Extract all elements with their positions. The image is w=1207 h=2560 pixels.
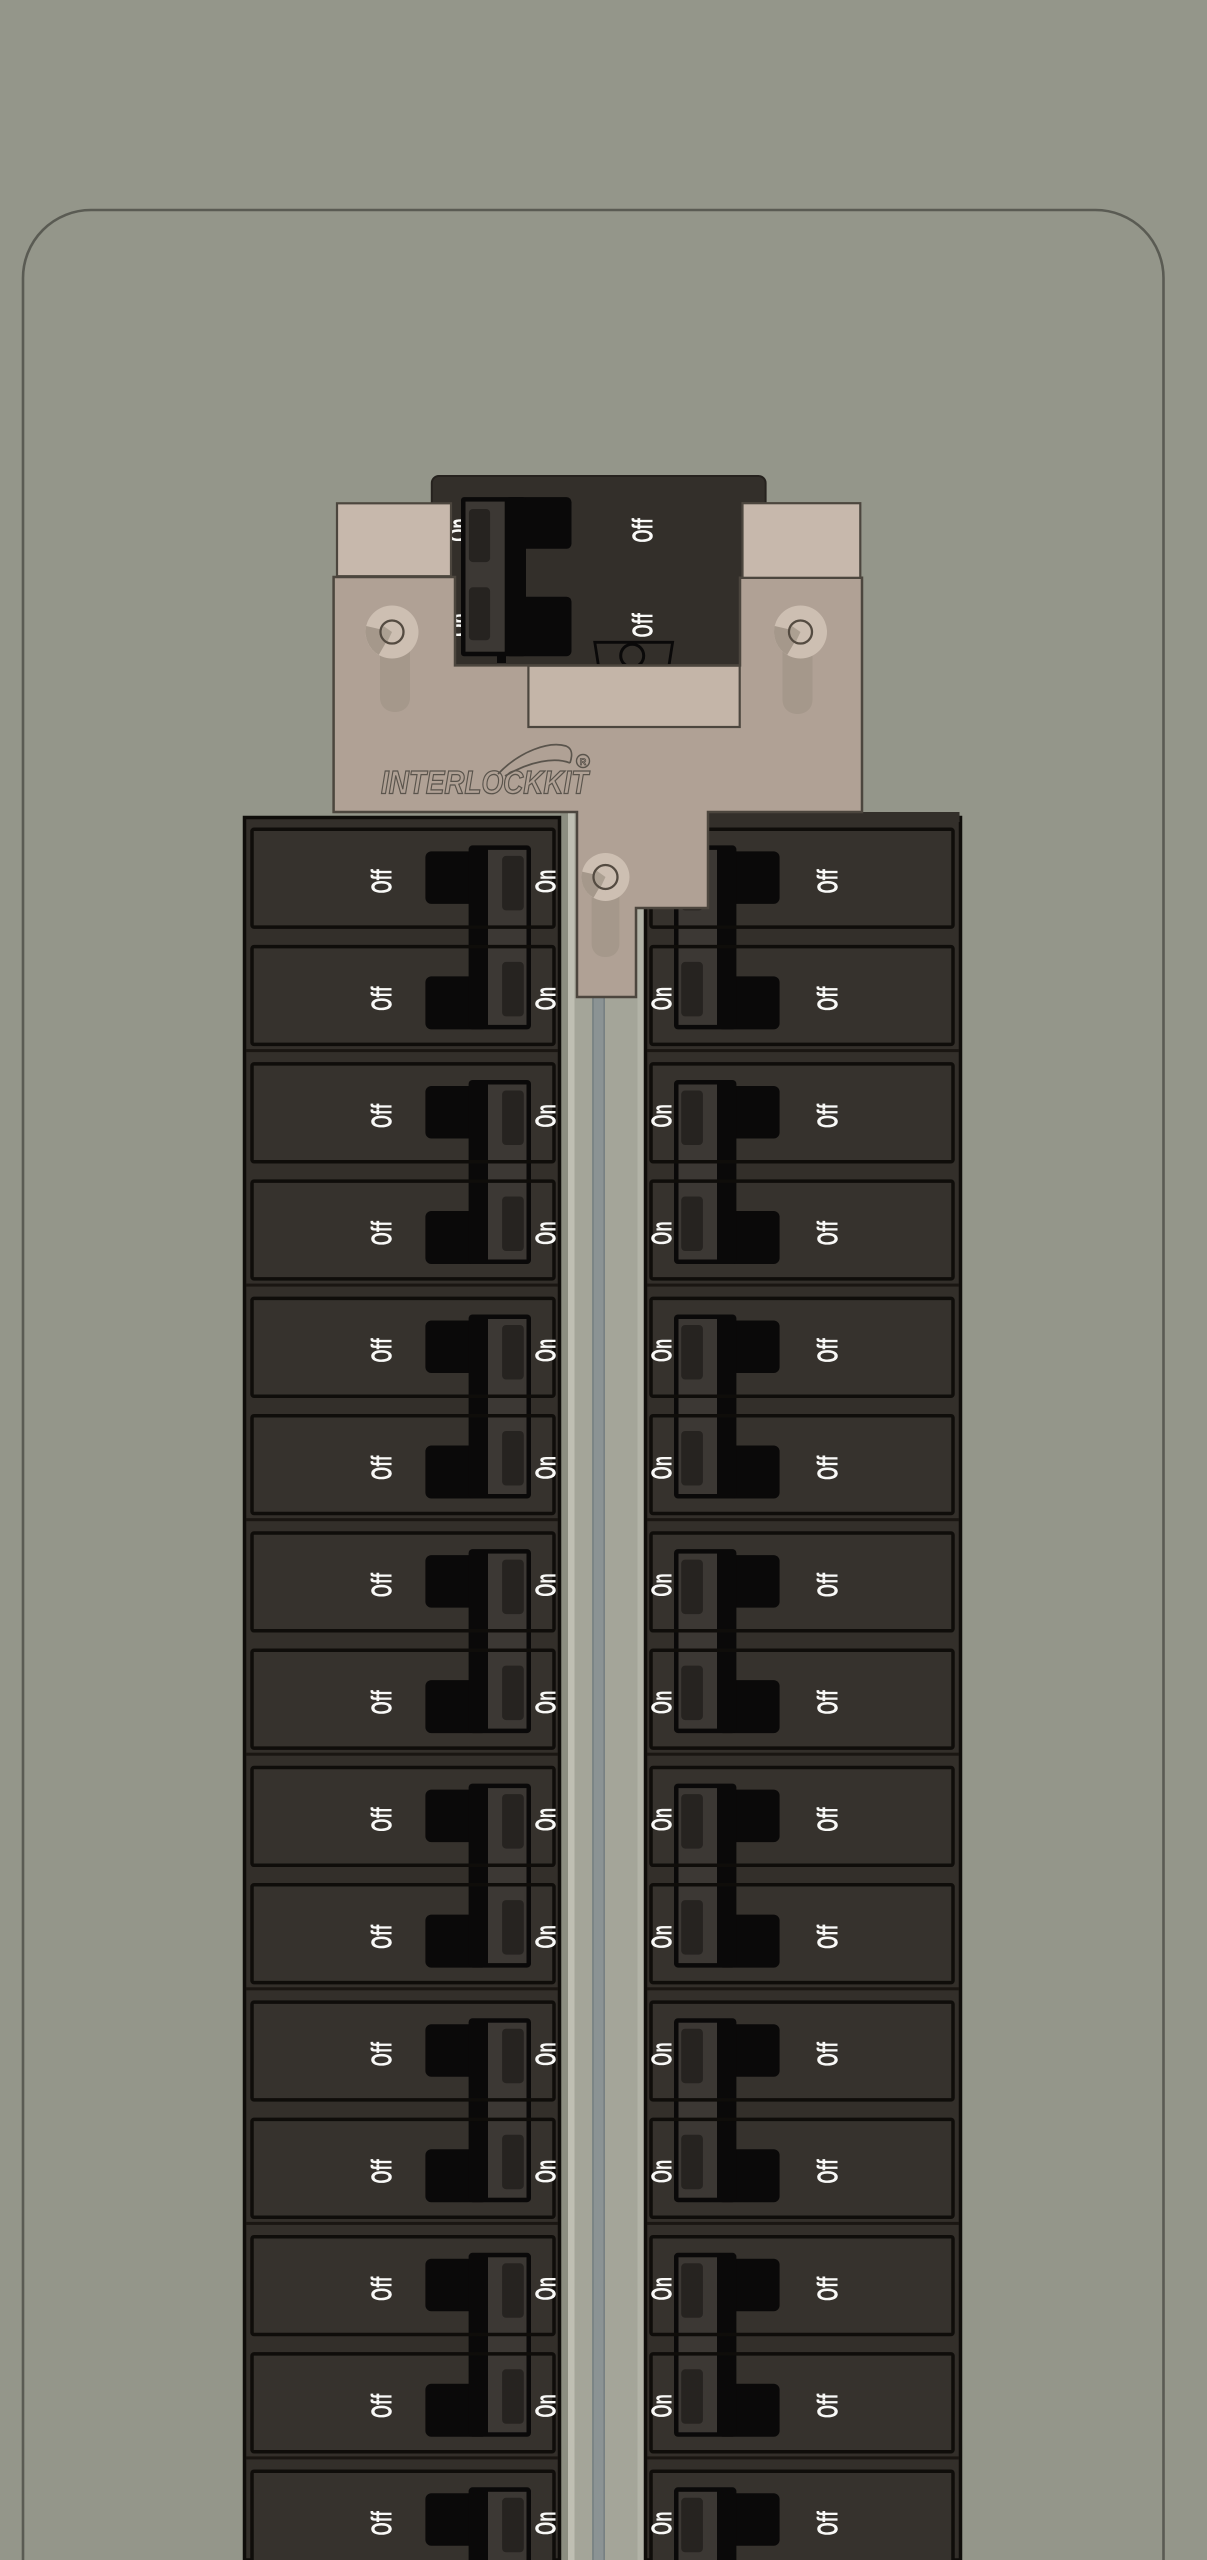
svg-text:On: On [530, 2160, 563, 2184]
svg-text:On: On [646, 1808, 679, 1832]
svg-text:INTERLOCKKIT: INTERLOCKKIT [381, 766, 591, 801]
svg-text:On: On [530, 1808, 563, 1832]
svg-text:Off: Off [627, 518, 660, 543]
svg-text:Off: Off [812, 2042, 845, 2067]
svg-text:Off: Off [812, 1455, 845, 1480]
svg-text:On: On [646, 1925, 679, 1949]
svg-text:Off: Off [812, 2159, 845, 2184]
svg-text:Off: Off [812, 1924, 845, 1949]
svg-text:Off: Off [366, 1104, 399, 1129]
svg-text:Off: Off [366, 2511, 399, 2536]
svg-text:Off: Off [366, 1573, 399, 1598]
svg-text:Off: Off [812, 1338, 845, 1363]
svg-text:On: On [646, 1456, 679, 1480]
svg-text:Off: Off [366, 2042, 399, 2067]
svg-text:R: R [580, 757, 587, 767]
svg-text:Off: Off [366, 1455, 399, 1480]
svg-text:On: On [530, 2042, 563, 2066]
svg-text:Off: Off [627, 613, 660, 638]
svg-text:Off: Off [812, 1807, 845, 1832]
svg-text:On: On [530, 870, 563, 894]
svg-text:Off: Off [366, 869, 399, 894]
svg-text:Off: Off [812, 2394, 845, 2419]
svg-text:On: On [646, 2042, 679, 2066]
svg-text:Off: Off [366, 1924, 399, 1949]
svg-text:Off: Off [812, 1690, 845, 1715]
svg-text:Off: Off [812, 986, 845, 1011]
svg-text:Off: Off [812, 869, 845, 894]
svg-text:On: On [646, 1339, 679, 1363]
svg-text:Off: Off [366, 1221, 399, 1246]
svg-text:On: On [646, 1573, 679, 1597]
svg-text:On: On [646, 1691, 679, 1715]
svg-text:On: On [530, 1573, 563, 1597]
svg-text:Off: Off [812, 1573, 845, 1598]
svg-text:On: On [646, 2394, 679, 2418]
svg-text:Off: Off [812, 2511, 845, 2536]
svg-text:On: On [646, 987, 679, 1011]
svg-text:On: On [530, 987, 563, 1011]
svg-text:Off: Off [366, 1807, 399, 1832]
svg-text:On: On [530, 1221, 563, 1245]
svg-text:Off: Off [366, 2394, 399, 2419]
svg-text:On: On [530, 1456, 563, 1480]
svg-text:On: On [646, 2277, 679, 2301]
svg-text:On: On [530, 2277, 563, 2301]
svg-text:On: On [530, 1104, 563, 1128]
svg-text:On: On [646, 1104, 679, 1128]
svg-text:On: On [530, 1339, 563, 1363]
svg-text:Off: Off [366, 1338, 399, 1363]
svg-text:On: On [646, 1221, 679, 1245]
svg-text:On: On [530, 2511, 563, 2535]
svg-text:On: On [530, 2394, 563, 2418]
svg-text:Off: Off [366, 2276, 399, 2301]
svg-text:Off: Off [812, 1104, 845, 1129]
svg-text:Off: Off [366, 2159, 399, 2184]
svg-text:Off: Off [812, 1221, 845, 1246]
svg-text:On: On [530, 1691, 563, 1715]
svg-text:Off: Off [366, 986, 399, 1011]
svg-text:On: On [646, 2511, 679, 2535]
svg-text:On: On [530, 1925, 563, 1949]
svg-text:Off: Off [366, 1690, 399, 1715]
svg-text:Off: Off [812, 2276, 845, 2301]
svg-text:On: On [646, 2160, 679, 2184]
